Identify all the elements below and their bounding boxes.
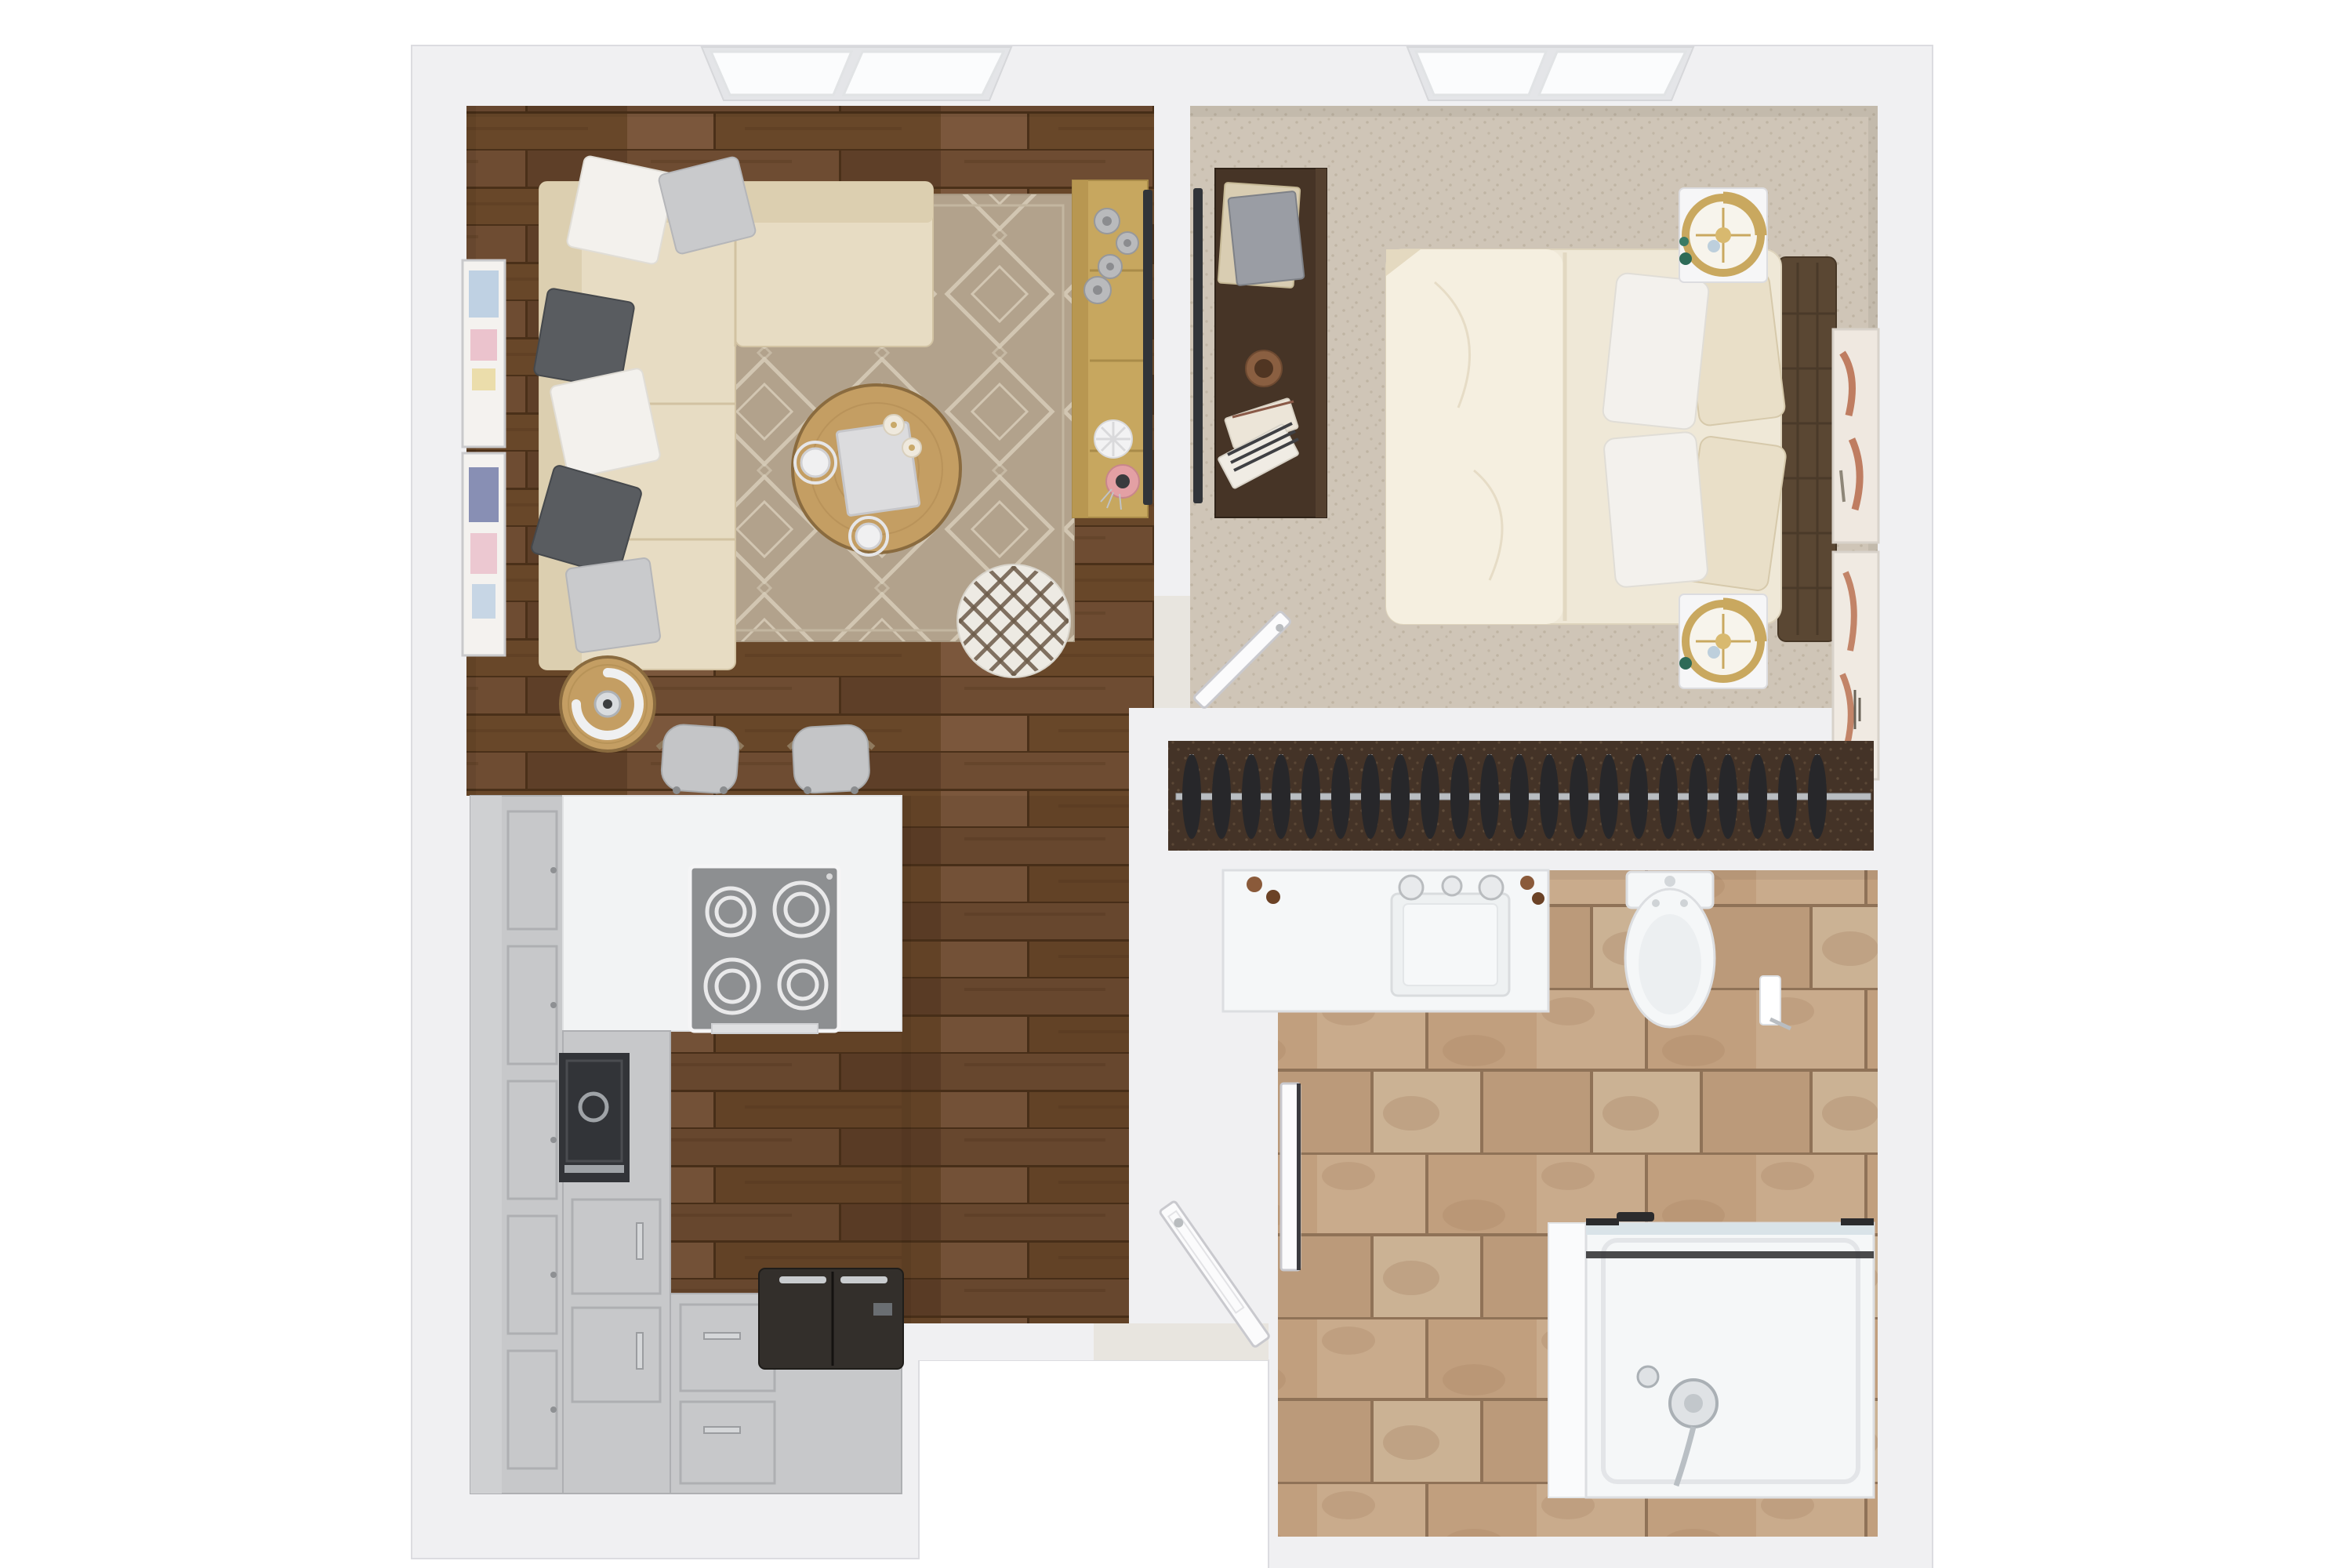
bedroom-doorway-threshold — [1154, 596, 1190, 708]
hanger-icon — [1808, 754, 1827, 839]
bottom-cabinet-run — [670, 1269, 903, 1494]
bar-stool — [658, 724, 742, 794]
toiletry-icon — [1266, 890, 1280, 904]
hanger-icon — [1778, 754, 1797, 839]
round-pouf — [957, 564, 1070, 677]
hanger-icon — [1510, 754, 1529, 839]
laptop-icon — [1228, 191, 1304, 285]
window-pane — [844, 52, 1004, 95]
window-pane — [711, 52, 851, 95]
faucet-spout-icon — [1443, 877, 1461, 895]
fridge-handle-icon — [840, 1276, 887, 1283]
round-coffee-table — [793, 385, 960, 555]
shower-door-handle-icon — [1617, 1212, 1654, 1221]
nightstand-bottom — [1679, 594, 1767, 688]
shower-pan — [1586, 1223, 1874, 1497]
fridge-display — [873, 1303, 892, 1316]
hanger-icon — [1212, 754, 1231, 839]
hallway-floor-shade — [902, 796, 1129, 1323]
hanger-icon — [1659, 754, 1678, 839]
shower-glass-frame — [1586, 1251, 1874, 1258]
living-room-window — [702, 47, 1011, 100]
closet-left-jamb — [1154, 741, 1168, 851]
walk-in-shower — [1548, 1212, 1874, 1497]
tv-bedroom — [1193, 188, 1203, 503]
bar-stool — [789, 724, 873, 794]
vanity — [1223, 870, 1548, 1011]
toiletry-icon — [1532, 892, 1544, 905]
closet-south-wall — [1223, 851, 1878, 870]
bathroom-door — [1281, 1083, 1301, 1270]
living-wall-art — [463, 260, 505, 655]
hanger-icon — [1361, 754, 1380, 839]
toilet — [1625, 872, 1715, 1027]
shower-curb — [1548, 1223, 1586, 1497]
peninsula-counter — [563, 796, 902, 1033]
left-cabinet-run — [559, 1031, 670, 1494]
bathroom-west-wall — [1223, 1011, 1278, 1323]
fridge-handle-icon — [779, 1276, 826, 1283]
kitchen-floor-shade — [670, 1031, 902, 1294]
bottle-icon — [1679, 252, 1692, 265]
side-table-with-lamp — [561, 657, 655, 751]
hallway-east-wall — [1129, 708, 1154, 1323]
bedroom-wall-art — [1833, 329, 1878, 779]
bedroom-window — [1407, 47, 1693, 100]
window-pane — [1416, 52, 1546, 95]
hanger-icon — [1272, 754, 1290, 839]
tv-living-room — [1143, 190, 1152, 505]
closet — [1168, 741, 1874, 851]
bottle-icon — [1679, 237, 1689, 246]
faucet-knob-icon — [1399, 876, 1423, 899]
hanger-icon — [1182, 754, 1201, 839]
cup-icon — [801, 448, 829, 477]
pantry-cabinets — [470, 796, 563, 1494]
hanger-icon — [1599, 754, 1618, 839]
floor-plan-rendering — [0, 0, 2352, 1568]
hanger-icon — [1242, 754, 1261, 839]
oven-handle-icon — [564, 1165, 624, 1173]
faucet-knob-icon — [1479, 876, 1503, 899]
floor-plan-stage — [0, 0, 2352, 1568]
oven-vent — [712, 1024, 818, 1033]
hanger-icon — [1450, 754, 1469, 839]
hanger-icon — [1570, 754, 1588, 839]
wall-oven — [559, 1053, 630, 1182]
hanger-icon — [1719, 754, 1737, 839]
art-canvas — [1833, 329, 1878, 543]
hanger-icon — [1480, 754, 1499, 839]
nightstand-top — [1679, 188, 1767, 282]
closet-north-wall — [1129, 708, 1878, 741]
toiletry-icon — [1520, 876, 1534, 890]
shower-drain-icon — [1638, 1367, 1658, 1387]
media-console — [1073, 180, 1152, 517]
living-bedroom-divider-wall — [1154, 106, 1190, 596]
bed — [1386, 249, 1836, 641]
hanger-icon — [1689, 754, 1708, 839]
refrigerator — [759, 1269, 903, 1369]
toiletry-icon — [1247, 877, 1262, 892]
window-pane — [1539, 52, 1686, 95]
bottle-icon — [1679, 657, 1692, 670]
shower-glass-panel — [1586, 1223, 1874, 1235]
hanger-icon — [1540, 754, 1559, 839]
hanger-icon — [1331, 754, 1350, 839]
hanger-icon — [1391, 754, 1410, 839]
cup-icon — [856, 524, 881, 549]
entry-wall — [902, 1323, 1094, 1360]
hanger-icon — [1629, 754, 1648, 839]
hanger-icon — [1421, 754, 1439, 839]
hanger-icon — [1748, 754, 1767, 839]
hanger-icon — [1301, 754, 1320, 839]
book-icon — [837, 422, 920, 516]
